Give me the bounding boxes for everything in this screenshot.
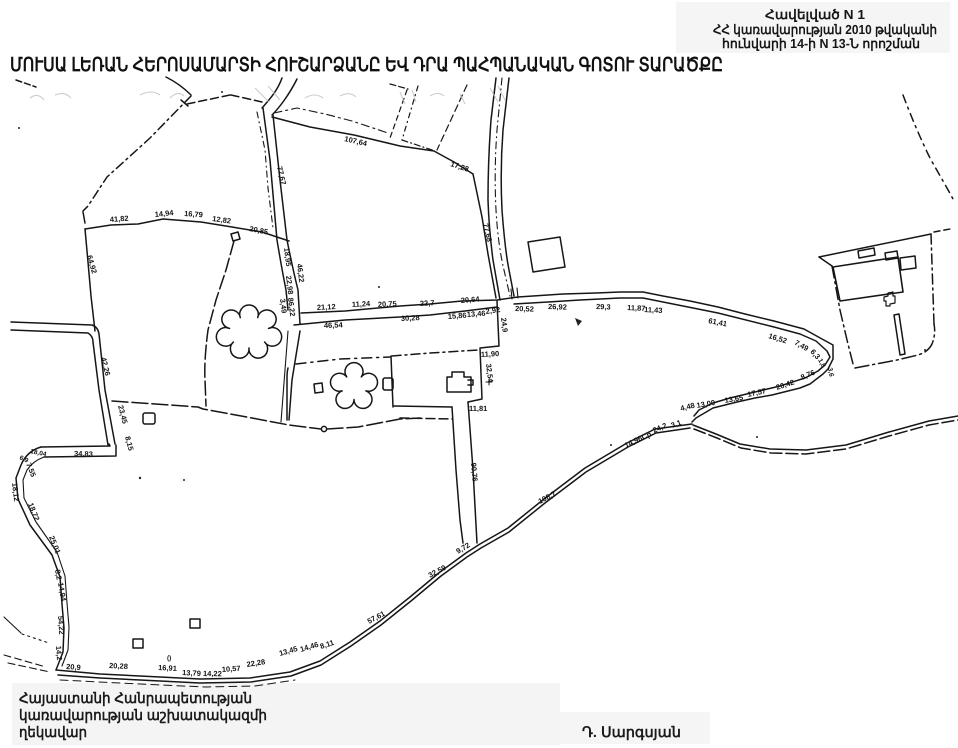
svg-text:30,28: 30,28 (401, 313, 420, 323)
svg-text:90,76: 90,76 (469, 462, 480, 481)
svg-text:հունվարի 14-ի N 13-Ն որոշման: հունվարի 14-ի N 13-Ն որոշման (722, 36, 920, 51)
svg-text:ղեկավար: ղեկավար (19, 725, 87, 741)
svg-text:11,90: 11,90 (481, 349, 500, 359)
svg-text:54,22: 54,22 (56, 616, 66, 635)
svg-text:34,83: 34,83 (74, 449, 93, 459)
svg-text:11,24: 11,24 (352, 299, 372, 309)
svg-text:ՀՀ կառավարության 2010 թվականի: ՀՀ կառավարության 2010 թվականի (713, 22, 937, 37)
svg-text:20,28: 20,28 (109, 661, 128, 671)
svg-text:Հավելված N 1: Հավելված N 1 (765, 7, 865, 22)
svg-text:41,82: 41,82 (110, 214, 129, 224)
svg-text:(): () (167, 655, 171, 662)
svg-text:11,43: 11,43 (644, 305, 663, 315)
svg-text:8,2: 8,2 (53, 569, 64, 581)
svg-text:11,87: 11,87 (627, 303, 646, 313)
svg-text:Դ. Սարգսյան: Դ. Սարգսյան (582, 725, 681, 741)
svg-text:20,64: 20,64 (460, 294, 480, 305)
svg-text:22,7: 22,7 (420, 298, 435, 308)
svg-text:ՄՈՒՍԱ ԼԵՌԱՆ ՀԵՐՈՍԱՄԱՐՏԻ ՀՈՒՇԱՐ: ՄՈՒՍԱ ԼԵՌԱՆ ՀԵՐՈՍԱՄԱՐՏԻ ՀՈՒՇԱՐՁԱՆԸ ԵՎ ԴՐ… (10, 55, 723, 76)
svg-text:20,52: 20,52 (515, 304, 534, 314)
svg-text:14,2: 14,2 (54, 646, 64, 661)
svg-text:14,22: 14,22 (203, 669, 222, 678)
svg-text:24,9: 24,9 (499, 317, 510, 333)
svg-text:13,46: 13,46 (467, 309, 486, 319)
svg-text:11,81: 11,81 (469, 404, 487, 413)
svg-text:Հայաստանի Հանրապետության: Հայաստանի Հանրապետության (19, 691, 252, 707)
svg-text:16,91: 16,91 (158, 663, 177, 673)
svg-text:20,75: 20,75 (378, 299, 397, 309)
svg-text:16,79: 16,79 (184, 209, 203, 219)
svg-text:20,9: 20,9 (66, 662, 81, 672)
svg-text:կառավարության աշխատակազմի: կառավարության աշխատակազմի (19, 708, 267, 724)
svg-text:29,3: 29,3 (596, 302, 611, 312)
svg-text:26,92: 26,92 (548, 302, 567, 312)
svg-text:13,79: 13,79 (182, 668, 201, 678)
svg-text:10,57: 10,57 (222, 664, 241, 674)
svg-text:21,12: 21,12 (317, 302, 336, 312)
svg-text:46,54: 46,54 (324, 320, 344, 330)
svg-text:15,86: 15,86 (448, 311, 467, 321)
